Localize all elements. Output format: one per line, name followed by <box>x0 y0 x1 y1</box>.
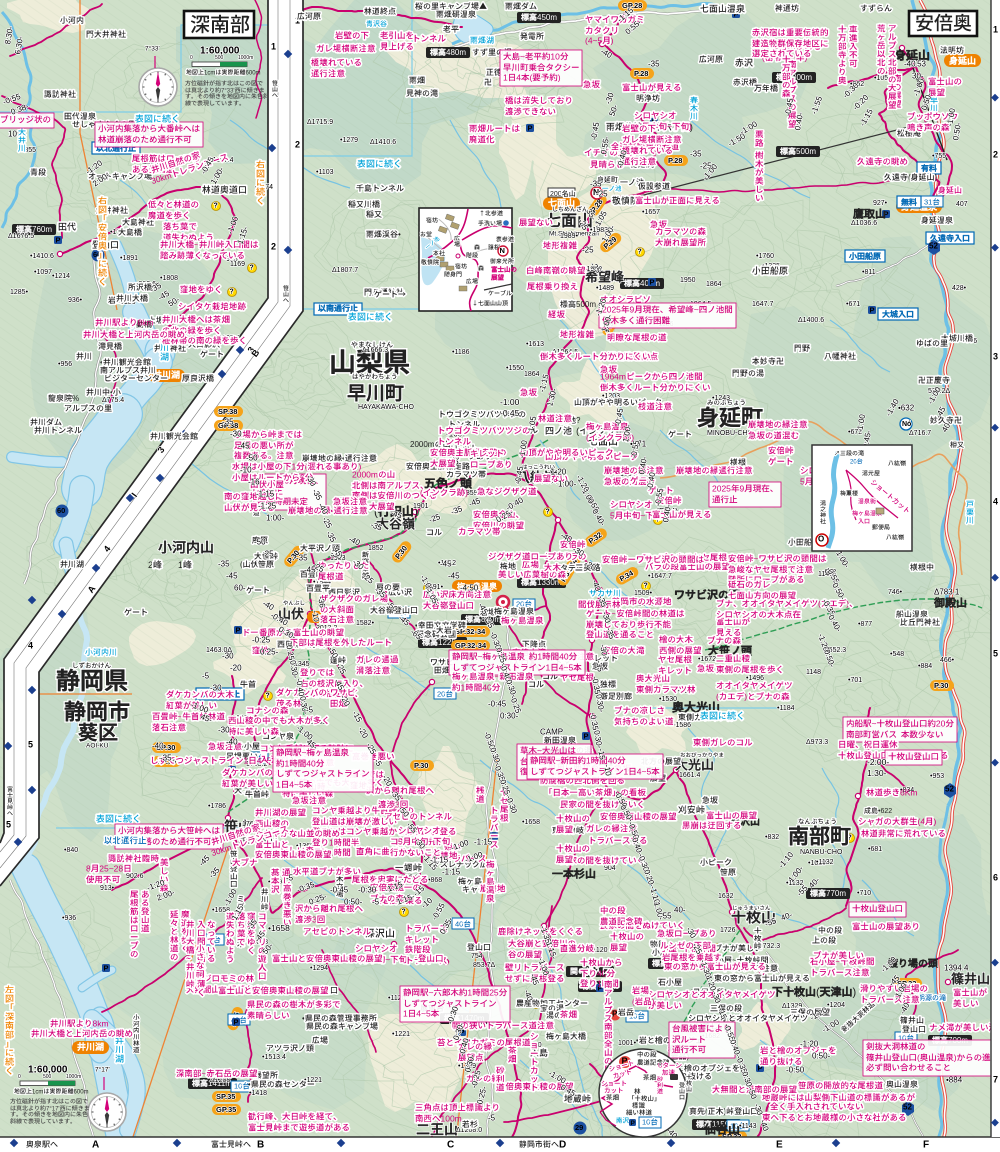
svg-text:-5: -5 <box>372 898 380 907</box>
svg-text:-55: -55 <box>660 912 672 921</box>
svg-text:4~5: 4~5 <box>289 779 304 789</box>
svg-text:-45: -45 <box>448 572 460 581</box>
svg-text:-0:50: -0:50 <box>786 1066 805 1075</box>
svg-text:1: 1 <box>586 755 591 765</box>
svg-text:8km: 8km <box>138 317 154 327</box>
svg-text:-1:25: -1:25 <box>258 502 277 511</box>
svg-text:P: P <box>650 277 655 286</box>
svg-text:1148: 1148 <box>806 669 821 676</box>
svg-text:): ) <box>853 987 857 999</box>
svg-text:•1657: •1657 <box>642 209 660 216</box>
svg-text:1: 1 <box>276 779 281 789</box>
svg-text:-1:00: -1:00 <box>500 397 520 407</box>
svg-text:2000m: 2000m <box>352 469 378 479</box>
svg-text:•884: •884 <box>918 663 932 670</box>
svg-text:40: 40 <box>559 651 569 661</box>
svg-text:40: 40 <box>455 920 463 929</box>
svg-text:1901: 1901 <box>413 503 429 510</box>
svg-text:4~5: 4~5 <box>637 766 652 776</box>
svg-text:-5: -5 <box>202 672 210 681</box>
svg-text:902.6: 902.6 <box>126 873 144 880</box>
svg-text:B: B <box>257 1139 264 1150</box>
svg-text:-45: -45 <box>238 442 250 451</box>
svg-text:746•: 746• <box>888 589 903 596</box>
svg-text:•1243: •1243 <box>712 395 730 402</box>
svg-text:4: 4 <box>993 497 998 507</box>
svg-text:NANBU-CHO: NANBU-CHO <box>800 849 843 856</box>
svg-text:7°17': 7°17' <box>95 1066 110 1074</box>
svg-text:9: 9 <box>740 483 745 493</box>
svg-text:Δ783.1: Δ783.1 <box>934 588 960 597</box>
svg-text:8km: 8km <box>93 1018 109 1028</box>
svg-text:SP.38: SP.38 <box>218 407 237 416</box>
svg-text:•1132: •1132 <box>816 859 834 866</box>
svg-text:GP.32-34: GP.32-34 <box>455 641 487 650</box>
svg-text:~: ~ <box>520 51 525 61</box>
svg-text:1cm: 1cm <box>204 70 215 76</box>
svg-text:1001•: 1001• <box>618 1040 637 1047</box>
svg-text:•936: •936 <box>62 915 76 922</box>
svg-text:-1:15: -1:15 <box>256 490 275 499</box>
svg-text:•832: •832 <box>765 834 779 841</box>
svg-text:500: 500 <box>215 55 224 61</box>
svg-text:•1658: •1658 <box>268 923 290 933</box>
svg-text:-35: -35 <box>222 418 234 427</box>
svg-text:7°17': 7°17' <box>46 1106 60 1112</box>
svg-text:-10: -10 <box>240 466 252 475</box>
svg-text:500m: 500m <box>796 147 816 156</box>
svg-text:1852: 1852 <box>368 545 384 552</box>
svg-text:•1143: •1143 <box>739 1123 757 1130</box>
svg-text:428•: 428• <box>952 285 967 292</box>
svg-text:1394.4: 1394.4 <box>944 964 969 973</box>
svg-text:): ) <box>954 1052 957 1062</box>
svg-text:1: 1 <box>624 766 629 776</box>
svg-text:1: 1 <box>244 755 249 765</box>
svg-text:1647.7: 1647.7 <box>752 301 774 308</box>
svg-text:52: 52 <box>929 242 938 251</box>
svg-text:1: 1 <box>403 1008 408 1018</box>
svg-text:-45: -45 <box>440 560 452 569</box>
svg-text:(: ( <box>917 1052 920 1062</box>
svg-text:A: A <box>92 1139 99 1150</box>
svg-text:2: 2 <box>271 242 276 252</box>
svg-text:-35: -35 <box>590 180 602 189</box>
svg-text:200: 200 <box>550 191 562 198</box>
svg-text:?: ? <box>644 582 648 589</box>
svg-text:-16: -16 <box>248 478 260 487</box>
svg-text:•956: •956 <box>58 361 72 368</box>
svg-text:•1496: •1496 <box>746 675 764 682</box>
svg-text:-1:20: -1:20 <box>800 1040 819 1049</box>
svg-text:?: ? <box>230 288 234 295</box>
svg-text:1: 1 <box>537 651 542 661</box>
svg-text:~: ~ <box>556 755 561 765</box>
svg-text:60: 60 <box>57 506 65 515</box>
svg-text:5: 5 <box>6 820 11 830</box>
svg-text:-45: -45 <box>226 572 238 581</box>
svg-text:•811: •811 <box>862 269 876 276</box>
svg-text:-1:15: -1:15 <box>442 868 461 877</box>
svg-text:(: ( <box>816 987 820 999</box>
svg-text:-25: -25 <box>262 550 274 559</box>
svg-text:1000m: 1000m <box>66 1074 81 1080</box>
svg-text:7°33': 7°33' <box>145 45 160 53</box>
svg-text:•1613: •1613 <box>526 341 544 348</box>
svg-text:754: 754 <box>471 953 483 960</box>
svg-text:•1221: •1221 <box>392 1031 410 1038</box>
svg-text:•1586: •1586 <box>673 722 691 729</box>
svg-text:25~28: 25~28 <box>99 863 123 873</box>
svg-text:•548: •548 <box>890 651 904 658</box>
svg-text:~: ~ <box>754 553 759 563</box>
svg-text:-5: -5 <box>306 706 314 715</box>
svg-text:4: 4 <box>28 641 33 651</box>
svg-text:•1530: •1530 <box>659 696 677 703</box>
svg-text:-2:00-: -2:00- <box>867 757 889 767</box>
svg-text:10: 10 <box>550 51 560 61</box>
svg-text:AOI-KU: AOI-KU <box>86 743 109 750</box>
svg-text:(: ( <box>530 72 533 82</box>
svg-text:0:50-: 0:50- <box>812 1052 831 1061</box>
svg-text:450m: 450m <box>537 13 557 22</box>
svg-text:•1786: •1786 <box>208 803 226 810</box>
svg-text:31: 31 <box>924 198 932 207</box>
svg-text:-40: -40 <box>152 742 164 751</box>
svg-text:Δ1410.6: Δ1410.6 <box>370 139 396 146</box>
svg-text:500m: 500m <box>576 300 596 309</box>
svg-text:•1097: •1097 <box>34 269 52 276</box>
svg-text:0:30-: 0:30- <box>500 712 519 721</box>
svg-text:60-: 60- <box>234 584 246 593</box>
svg-text:•701: •701 <box>848 677 862 684</box>
svg-text:•755: •755 <box>932 153 946 160</box>
svg-text:): ) <box>358 461 361 471</box>
svg-text:•622: •622 <box>878 808 892 815</box>
svg-text:D: D <box>559 1139 566 1150</box>
svg-text:•877: •877 <box>858 621 872 628</box>
svg-text:-5: -5 <box>286 874 294 883</box>
svg-text:-0:25: -0:25 <box>252 636 271 645</box>
svg-text:•1808: •1808 <box>160 275 178 282</box>
svg-text:-1:20: -1:20 <box>548 468 567 477</box>
svg-text:30-: 30- <box>912 72 924 81</box>
svg-text:-45: -45 <box>304 566 316 575</box>
svg-text:3: 3 <box>993 352 998 362</box>
svg-text:•1103: •1103 <box>316 169 334 176</box>
svg-text:-30: -30 <box>230 430 242 439</box>
svg-text:•1418: •1418 <box>249 1090 267 1097</box>
svg-text:1964m: 1964m <box>600 371 626 381</box>
svg-text:4: 4 <box>516 72 521 82</box>
svg-text:52: 52 <box>903 1103 912 1112</box>
svg-text:466•: 466• <box>940 657 955 664</box>
svg-text:1864: 1864 <box>706 281 722 288</box>
svg-text:?: ? <box>546 508 550 515</box>
svg-text:F: F <box>923 1139 929 1150</box>
svg-text:•953: •953 <box>930 773 944 780</box>
svg-text:Δ1036.6: Δ1036.6 <box>851 220 877 227</box>
svg-text:1:00-: 1:00- <box>558 480 577 489</box>
svg-text:•710: •710 <box>857 890 871 897</box>
svg-text:Δ1400.6: Δ1400.6 <box>798 317 824 324</box>
svg-text:HAYAKAWA-CHO: HAYAKAWA-CHO <box>358 404 415 411</box>
svg-text:?: ? <box>266 692 270 699</box>
svg-text:-30: -30 <box>210 684 222 693</box>
svg-text:1285•: 1285• <box>10 289 29 296</box>
svg-text:Δ775.4: Δ775.4 <box>102 397 124 404</box>
svg-text:4~5: 4~5 <box>559 662 574 672</box>
svg-text:52: 52 <box>945 785 954 794</box>
svg-text:4~5: 4~5 <box>416 1008 431 1018</box>
svg-text:10: 10 <box>642 1118 650 1127</box>
svg-text:P: P <box>584 731 589 740</box>
svg-text:2025: 2025 <box>712 483 731 493</box>
svg-text:Nó: Nó <box>902 421 911 428</box>
svg-text:600m: 600m <box>74 1089 89 1095</box>
svg-text:770m: 770m <box>826 889 846 898</box>
svg-text:5: 5 <box>993 649 998 659</box>
svg-text:1:30-: 1:30- <box>867 768 887 778</box>
svg-text:E: E <box>776 1139 783 1150</box>
svg-text:P.30: P.30 <box>414 761 428 770</box>
svg-text:): ) <box>933 816 936 826</box>
svg-text:20: 20 <box>936 718 946 728</box>
svg-text:-1:15: -1:15 <box>430 856 449 865</box>
svg-text:P: P <box>528 123 533 132</box>
svg-text:P.30: P.30 <box>934 681 948 690</box>
svg-text:CAMP: CAMP <box>540 728 563 737</box>
svg-text:480m: 480m <box>446 48 466 57</box>
svg-text:1864: 1864 <box>524 371 540 378</box>
svg-text:~: ~ <box>872 718 877 728</box>
svg-text:•1891: •1891 <box>120 255 138 262</box>
svg-text:6: 6 <box>993 873 998 883</box>
svg-text:853.7Δ: 853.7Δ <box>473 962 496 969</box>
svg-text:Δ1807.7: Δ1807.7 <box>332 267 358 274</box>
svg-text:•632: •632 <box>898 404 915 413</box>
svg-text:500: 500 <box>43 1074 52 1080</box>
svg-text:-40: -40 <box>226 738 238 747</box>
svg-text:~: ~ <box>302 747 307 757</box>
svg-text:•1760: •1760 <box>756 253 774 260</box>
svg-text:O: O <box>818 535 824 544</box>
svg-text:0: 0 <box>18 1074 21 1080</box>
svg-text:-0:45: -0:45 <box>488 700 507 709</box>
svg-text:-20: -20 <box>230 664 242 673</box>
svg-text:P: P <box>631 1120 636 1127</box>
svg-text:•1489: •1489 <box>596 285 614 292</box>
svg-text:1632: 1632 <box>718 893 734 900</box>
svg-text:-25: -25 <box>596 190 608 199</box>
svg-text:•681: •681 <box>868 846 882 853</box>
svg-text:5: 5 <box>28 740 33 750</box>
svg-text:1: 1 <box>503 72 508 82</box>
svg-text:•1513.4: •1513.4 <box>262 1054 286 1061</box>
svg-text:MINOBU-CHO: MINOBU-CHO <box>707 430 753 437</box>
svg-text:-50: -50 <box>254 538 266 547</box>
svg-text:•1279: •1279 <box>340 137 358 144</box>
svg-text:Δ973.3: Δ973.3 <box>806 739 828 746</box>
svg-text:1726: 1726 <box>720 927 736 934</box>
svg-text:): ) <box>744 691 747 701</box>
svg-text:40-: 40- <box>674 906 686 915</box>
svg-text:1: 1 <box>271 42 276 52</box>
svg-text:-30: -30 <box>218 726 230 735</box>
svg-text:1cm: 1cm <box>32 1089 43 1095</box>
svg-text:): ) <box>611 35 614 45</box>
svg-text:•884: •884 <box>946 1076 963 1085</box>
svg-text:407: 407 <box>956 201 968 208</box>
svg-text:•1550: •1550 <box>506 365 524 372</box>
svg-text:(4~5: (4~5 <box>585 35 603 45</box>
svg-text:Δ1676.5: Δ1676.5 <box>8 233 34 240</box>
svg-text:-35: -35 <box>648 60 660 69</box>
svg-text:0:25-: 0:25- <box>260 648 279 657</box>
svg-text:1950: 1950 <box>680 277 696 284</box>
svg-text:1: 1 <box>467 987 472 997</box>
svg-text:927•: 927• <box>873 200 888 207</box>
svg-text:•1647.7: •1647.7 <box>648 573 672 580</box>
svg-text:7: 7 <box>993 1075 998 1085</box>
svg-text:~: ~ <box>429 987 434 997</box>
svg-text:P: P <box>234 1017 239 1026</box>
svg-text:•1184: •1184 <box>777 705 795 712</box>
svg-text:-40: -40 <box>904 60 916 69</box>
svg-text:•1410.6: •1410.6 <box>30 253 54 260</box>
svg-text:-25: -25 <box>582 246 594 255</box>
svg-text:P: P <box>236 625 241 634</box>
svg-text:600m: 600m <box>246 70 261 76</box>
svg-text:•840: •840 <box>64 847 78 854</box>
svg-text:SP.35: SP.35 <box>216 1092 235 1101</box>
svg-text:): ) <box>652 996 655 1006</box>
svg-text:~: ~ <box>694 304 699 314</box>
svg-text:-4:50: -4:50 <box>460 584 479 593</box>
svg-text:?: ? <box>638 248 642 255</box>
svg-text:40: 40 <box>306 758 316 768</box>
svg-text:25: 25 <box>489 987 499 997</box>
svg-text:-5: -5 <box>488 1114 496 1123</box>
svg-text:7°33': 7°33' <box>221 88 235 94</box>
svg-text:-0:45: -0:45 <box>330 886 349 895</box>
svg-text:Δ1715.9: Δ1715.9 <box>307 119 333 126</box>
svg-text:0:50-: 0:50- <box>344 898 363 907</box>
svg-text:100m: 100m <box>441 1113 462 1123</box>
svg-text:-30: -30 <box>222 652 234 661</box>
svg-text:936•: 936• <box>68 297 83 304</box>
svg-text:-0:30: -0:30 <box>358 886 377 895</box>
svg-text:904: 904 <box>604 865 616 872</box>
svg-text:Δ716.7: Δ716.7 <box>909 430 931 437</box>
svg-text:?: ? <box>576 416 581 425</box>
svg-text:1169: 1169 <box>230 261 245 268</box>
svg-text:-35: -35 <box>296 554 308 563</box>
svg-text:N: N <box>500 246 505 255</box>
svg-text:): ) <box>689 121 692 131</box>
svg-text:%: % <box>72 394 79 403</box>
svg-text:913•: 913• <box>100 885 115 892</box>
svg-text:760m: 760m <box>32 225 52 234</box>
svg-text:?: ? <box>402 908 406 915</box>
svg-text:-1:15: -1:15 <box>474 838 493 847</box>
svg-text:1000m: 1000m <box>238 55 253 61</box>
svg-text:1: 1 <box>285 758 290 768</box>
svg-text:9: 9 <box>630 304 635 314</box>
svg-text:P.28: P.28 <box>668 156 682 165</box>
svg-text:P: P <box>870 305 875 314</box>
svg-text:•671: •671 <box>846 301 860 308</box>
svg-text:•: • <box>398 230 401 239</box>
svg-text:•1214: •1214 <box>52 273 70 280</box>
svg-text:Δ1666.3: Δ1666.3 <box>362 347 388 354</box>
svg-text:-0:45: -0:45 <box>500 408 520 418</box>
svg-text:): ) <box>846 598 849 608</box>
svg-text:1: 1 <box>993 25 998 35</box>
svg-text:29: 29 <box>575 1123 583 1132</box>
svg-text:4~5: 4~5 <box>257 755 272 765</box>
svg-text:•1294: •1294 <box>310 965 328 972</box>
svg-text:-35: -35 <box>690 150 702 159</box>
svg-text:0: 0 <box>190 55 193 61</box>
svg-text:GP.35: GP.35 <box>216 1105 236 1114</box>
svg-text:1989•: 1989• <box>560 233 579 240</box>
svg-text:10: 10 <box>234 1082 242 1091</box>
svg-text:•1186: •1186 <box>452 349 470 356</box>
svg-text:2: 2 <box>993 150 998 160</box>
svg-text:•1658: •1658 <box>522 819 540 826</box>
svg-text:-35: -35 <box>218 560 230 569</box>
svg-text:~: ~ <box>478 651 483 661</box>
svg-text:•868: •868 <box>428 877 442 884</box>
svg-text:P.28: P.28 <box>634 69 648 78</box>
svg-text:1661.4: 1661.4 <box>679 772 701 779</box>
svg-text:): ) <box>935 173 938 182</box>
svg-text:-35: -35 <box>160 754 172 763</box>
svg-text:•1672: •1672 <box>698 656 716 663</box>
svg-text:-50: -50 <box>246 454 258 463</box>
svg-text:): ) <box>465 487 468 497</box>
svg-text:1582•: 1582• <box>356 620 375 627</box>
svg-text:1:00-: 1:00- <box>266 514 285 523</box>
svg-text:?: ? <box>214 202 218 209</box>
svg-text:6Km: 6Km <box>900 787 917 797</box>
svg-text:?: ? <box>250 264 254 271</box>
svg-text:1: 1 <box>546 662 551 672</box>
svg-text:P: P <box>104 963 109 972</box>
svg-text:): ) <box>558 72 561 82</box>
svg-text:20: 20 <box>437 690 445 699</box>
svg-text:P: P <box>56 235 61 244</box>
svg-text:2: 2 <box>295 140 300 150</box>
svg-text:C: C <box>447 1139 454 1150</box>
